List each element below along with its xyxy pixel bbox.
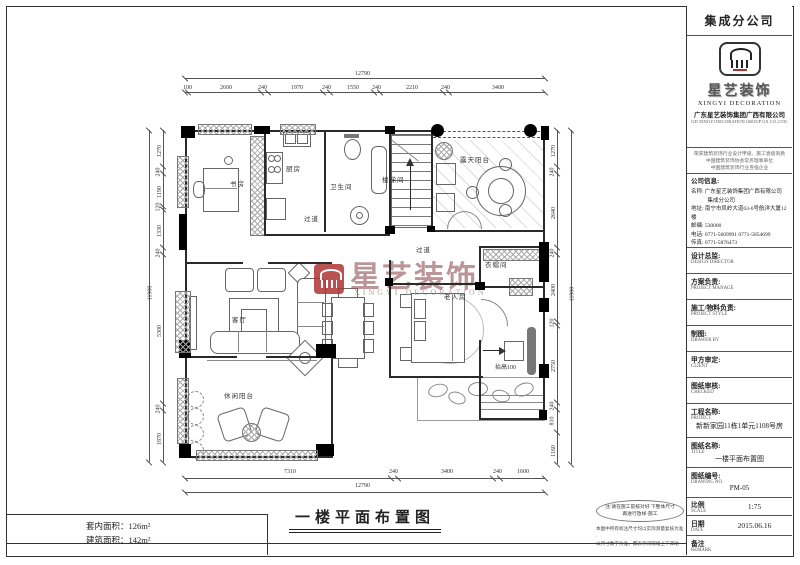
title-block: 集成分公司 星艺装饰 XINGYI DECORATION 广东星艺装饰集团广西有… xyxy=(686,6,792,555)
dimension-label: 2210 xyxy=(406,85,418,91)
corner-table-top xyxy=(299,352,311,364)
dimension-label: 1270 xyxy=(157,145,163,157)
note-line: 以尺寸数字为准，都表示间隔墙上下浮动· xyxy=(596,540,684,547)
column xyxy=(316,344,336,358)
wall xyxy=(331,356,333,458)
dimension-label: 2750 xyxy=(551,360,557,372)
dimension-label: 12790 xyxy=(355,71,370,77)
dining-chair xyxy=(363,321,374,335)
entry-door-leaf xyxy=(481,299,508,326)
balcony-cabinet xyxy=(436,193,455,212)
entry-arrow-head xyxy=(499,347,506,355)
dimension-label: 240 xyxy=(550,402,556,411)
dimension-label: 240 xyxy=(322,85,331,91)
room-label-corridor-2: 过道 xyxy=(416,244,431,254)
drawing-title: 一楼平面布置图 xyxy=(265,506,465,533)
study-lamp xyxy=(224,156,233,165)
dimension-label: 240 xyxy=(156,168,162,177)
branch-header: 集成分公司 xyxy=(687,6,792,36)
room-label-corridor-1: 过道 xyxy=(304,213,319,223)
dining-chair xyxy=(363,339,374,353)
balcony-plant xyxy=(187,408,204,425)
room-label-balcony-bottom: 休闲阳台 xyxy=(224,390,254,400)
wall xyxy=(479,418,545,420)
dimension-label: 1160 xyxy=(551,445,557,457)
column xyxy=(539,410,547,420)
column xyxy=(179,444,191,458)
balcony-chair xyxy=(499,158,512,171)
dimension-label: 3400 xyxy=(492,85,504,91)
window xyxy=(196,450,318,461)
sofa-bench-line xyxy=(238,331,239,352)
wall xyxy=(479,340,481,418)
toilet xyxy=(344,139,361,160)
wall xyxy=(389,376,483,378)
room-label-balcony-top: 露天阳台 xyxy=(460,154,490,164)
wall xyxy=(431,132,433,232)
window xyxy=(175,291,191,353)
company-logo-section: 星艺装饰 XINGYI DECORATION 广东星艺装饰集团广西有限公司 GD… xyxy=(687,36,792,148)
note-oval: 注:请在施工前核对好 下整体尺寸 再进行放样·施工 xyxy=(596,500,684,522)
note-line: 本图中所有标注尺寸均以实际测量复核为准· xyxy=(596,525,684,540)
kitchen-sink-bowl xyxy=(297,134,308,144)
study-chair xyxy=(193,181,205,198)
balcony-cabinet xyxy=(436,163,456,185)
room-label-cloak: 衣帽间 xyxy=(485,259,508,269)
balcony-chair xyxy=(499,204,512,217)
dining-chair xyxy=(363,303,374,317)
raised-platform xyxy=(504,341,524,361)
bed-pillow xyxy=(414,321,426,341)
field-scale: 比例 SCALE 1:75 xyxy=(687,498,792,516)
wash-basin-drain xyxy=(356,212,363,219)
column xyxy=(179,214,187,250)
field-design-director: 设计总监: DESIGN DIRECTOR xyxy=(687,248,792,274)
dimension-label: 1600 xyxy=(517,469,529,475)
dimension-label: 1330 xyxy=(157,225,163,237)
drawing-sheet: 星艺装饰 XINGYI DECORATION 抬高100 10026002401… xyxy=(0,0,800,565)
column xyxy=(316,444,334,456)
build-area-text: 建筑面积：142m² xyxy=(86,533,267,547)
dimension-label: 11900 xyxy=(569,287,575,302)
dimension-line xyxy=(185,492,545,493)
dimension-label: 11900 xyxy=(147,286,153,301)
column xyxy=(427,226,435,232)
wall xyxy=(268,262,332,264)
column xyxy=(385,226,395,234)
sofa-bench xyxy=(210,331,300,354)
wall xyxy=(433,230,545,232)
column xyxy=(539,242,549,282)
dimension-label: 240 xyxy=(493,469,502,475)
field-drawing-name: 图纸名称: TITLE 一楼平面布置图 xyxy=(687,438,792,468)
dining-table xyxy=(331,297,365,359)
room-label-bath: 卫生间 xyxy=(330,181,353,191)
column xyxy=(254,126,270,134)
dining-chair xyxy=(338,358,358,368)
column xyxy=(385,278,393,286)
dimension-label: 1550 xyxy=(347,85,359,91)
construction-notes: 注:请在施工前核对好 下整体尺寸 再进行放样·施工 本图中所有标注尺寸均以实际测… xyxy=(596,500,684,547)
column xyxy=(541,126,549,140)
dimension-line xyxy=(557,130,558,464)
bathtub xyxy=(371,146,387,194)
field-date: 日期 DATE 2015.06.16 xyxy=(687,516,792,536)
dimension-label: 810 xyxy=(550,417,556,426)
dimension-label: 240 xyxy=(389,469,398,475)
column xyxy=(539,298,549,312)
study-desk-divider xyxy=(203,188,237,189)
dimension-label: 2640 xyxy=(551,207,557,219)
field-remark: 备注 REMARK xyxy=(687,536,792,555)
toilet-tank xyxy=(344,134,359,138)
balcony-sill-line xyxy=(207,360,317,361)
study-bookshelf xyxy=(250,136,265,236)
dimension-label: 1190 xyxy=(157,186,163,198)
column xyxy=(539,364,549,378)
balcony-chair xyxy=(466,186,479,199)
column xyxy=(385,126,395,134)
wall xyxy=(479,286,545,288)
dimension-label: 240 xyxy=(550,168,556,177)
company-logo-icon xyxy=(719,42,761,76)
shoe-cabinet xyxy=(527,327,536,375)
study-desk xyxy=(203,168,239,212)
field-project-manager: 方案负责: PROJECT MANAGE xyxy=(687,274,792,300)
dimension-label: 240 xyxy=(156,249,162,258)
dimension-line xyxy=(185,78,545,79)
balcony-plant xyxy=(187,425,204,442)
certification-text: 荣获建筑装饰行业设计甲级、施工壹级资质 中国建筑装饰协会常务理事单位 中国建筑装… xyxy=(687,148,792,174)
brand-logo-icon xyxy=(314,264,344,294)
stairs-direction-line xyxy=(410,165,411,210)
dimension-label: 2600 xyxy=(220,85,232,91)
dining-chair xyxy=(322,321,333,335)
window xyxy=(177,378,189,444)
company-info: 公司信息: 名称: 广东星艺装饰集团广西有限公司 集成分公司 地址: 南宁市凤岭… xyxy=(687,174,792,248)
balcony-planter xyxy=(435,142,453,160)
room-label-stair: 楼梯间 xyxy=(382,174,405,184)
company-name-cn: 广东星艺装饰集团广西有限公司 xyxy=(687,109,792,119)
dimension-label: 7310 xyxy=(284,469,296,475)
leisure-round-table xyxy=(242,423,261,442)
round-column xyxy=(524,124,537,137)
wall xyxy=(389,283,481,285)
dimension-label: 3400 xyxy=(441,469,453,475)
dimension-label: 240 xyxy=(550,249,556,258)
wall xyxy=(266,234,390,236)
dimension-label: 240 xyxy=(372,85,381,91)
sofa-bench-line xyxy=(266,331,267,352)
window xyxy=(177,156,189,208)
dimension-label: 240 xyxy=(156,405,162,414)
balcony-round-table-top xyxy=(488,178,514,204)
nightstand xyxy=(400,347,412,361)
living-armchair xyxy=(225,268,254,292)
column xyxy=(475,282,485,290)
dimension-label: 1870 xyxy=(157,433,163,445)
area-info-box: 套内面积：126m² 建筑面积：142m² xyxy=(6,514,268,555)
window xyxy=(198,124,252,135)
inner-area-text: 套内面积：126m² xyxy=(86,519,267,533)
room-label-study: 书房 xyxy=(230,178,245,188)
company-name-en: GD XINGYI DECORATION GROUP GX CO.,LTD. xyxy=(687,119,792,124)
stove-burner xyxy=(274,166,281,173)
dimension-label: 12790 xyxy=(355,483,370,489)
brand-name-en: XINGYI DECORATION xyxy=(687,100,792,107)
dimension-label: 240 xyxy=(441,85,450,91)
field-material-manager: 施工/物料负责: PROJECT STYLE xyxy=(687,300,792,326)
window xyxy=(280,124,316,135)
stairs-up-arrow xyxy=(406,158,414,166)
dimension-label: 120 xyxy=(550,319,556,328)
field-client: 甲方审定: CLIENT xyxy=(687,352,792,378)
room-label-kitchen: 厨房 xyxy=(286,163,301,173)
field-drawing-no: 图纸编号: DRAWING NO. PM-05 xyxy=(687,468,792,498)
room-label-living: 客厅 xyxy=(232,314,247,324)
stove-burner xyxy=(274,155,281,162)
column xyxy=(181,126,195,138)
dimension-label: 240 xyxy=(258,85,267,91)
brand-name-cn: 星艺装饰 xyxy=(687,80,792,100)
dimension-label: 1270 xyxy=(551,145,557,157)
field-checked: 图纸审核: CHECKED xyxy=(687,378,792,404)
wall xyxy=(324,132,326,232)
field-drawer: 制图: DRAWER BY xyxy=(687,326,792,352)
dimension-line xyxy=(185,92,545,93)
dining-chair xyxy=(322,303,333,317)
wall xyxy=(389,283,391,378)
room-label-bedroom: 老人房 xyxy=(444,291,467,301)
wall xyxy=(185,356,237,358)
living-armchair xyxy=(257,268,286,292)
sofa-cushion-line xyxy=(297,326,324,327)
dimension-label: 2400 xyxy=(551,284,557,296)
wall xyxy=(264,132,266,236)
floor-plan: 星艺装饰 XINGYI DECORATION 抬高100 10026002401… xyxy=(0,0,686,543)
dimension-label: 100 xyxy=(183,85,192,91)
round-column xyxy=(431,124,444,137)
wall xyxy=(185,262,243,264)
field-project-name: 工程名称: PROJECT 新新家园11栋1单元1108号房 xyxy=(687,404,792,438)
dimension-label: 1970 xyxy=(291,85,303,91)
dimension-label: 120 xyxy=(156,203,162,212)
balcony-plant xyxy=(187,391,204,408)
kitchen-sink-bowl xyxy=(285,134,296,144)
wall xyxy=(479,246,545,248)
kitchen-fridge xyxy=(266,198,286,220)
raise-annotation: 抬高100 xyxy=(495,362,516,371)
dimension-label: 5300 xyxy=(157,325,163,337)
